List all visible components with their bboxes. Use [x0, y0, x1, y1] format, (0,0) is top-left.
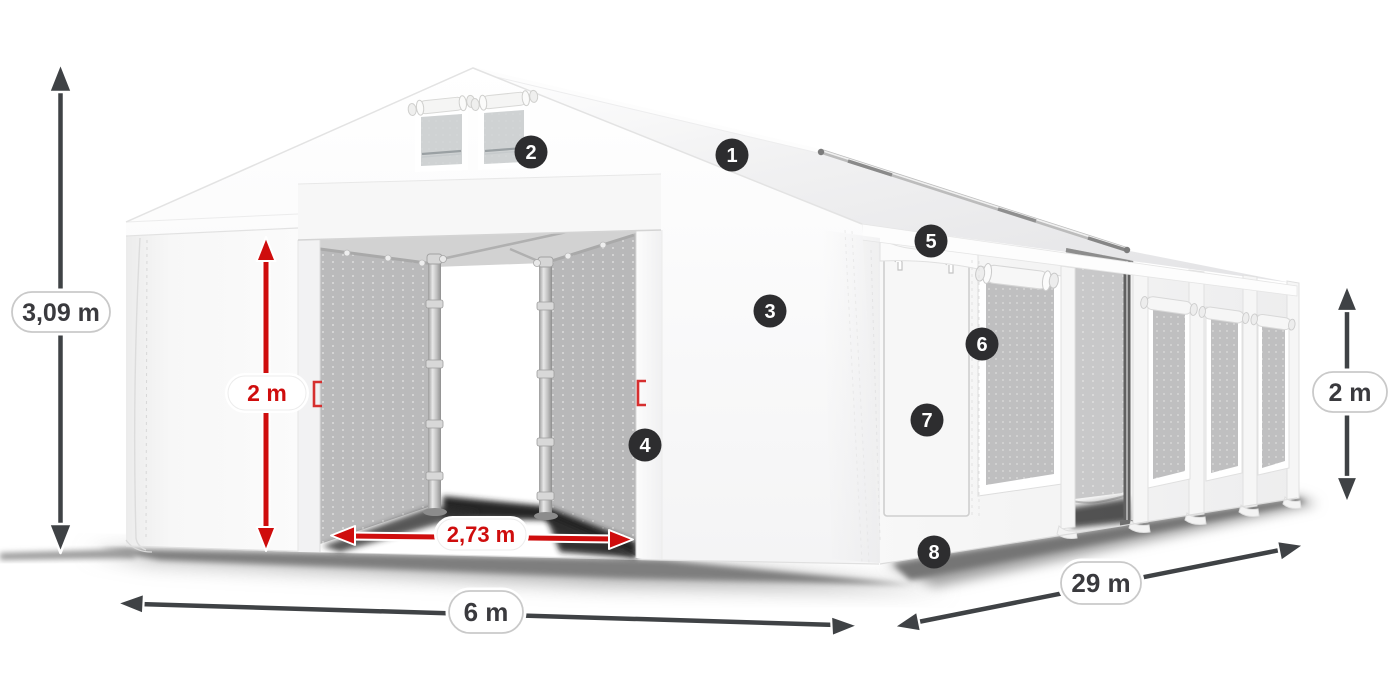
svg-text:8: 8: [928, 542, 939, 564]
svg-text:3,09 m: 3,09 m: [22, 299, 100, 327]
svg-text:2 m: 2 m: [247, 380, 287, 406]
svg-text:3: 3: [764, 301, 775, 323]
svg-text:29 m: 29 m: [1071, 568, 1130, 598]
svg-text:6 m: 6 m: [464, 597, 509, 627]
svg-text:5: 5: [925, 231, 936, 253]
svg-text:1: 1: [726, 145, 737, 167]
svg-text:2,73 m: 2,73 m: [447, 522, 516, 547]
svg-text:4: 4: [639, 435, 651, 457]
svg-text:2: 2: [525, 142, 536, 164]
svg-text:6: 6: [976, 334, 987, 356]
svg-text:7: 7: [921, 410, 932, 432]
svg-text:2 m: 2 m: [1328, 379, 1371, 407]
